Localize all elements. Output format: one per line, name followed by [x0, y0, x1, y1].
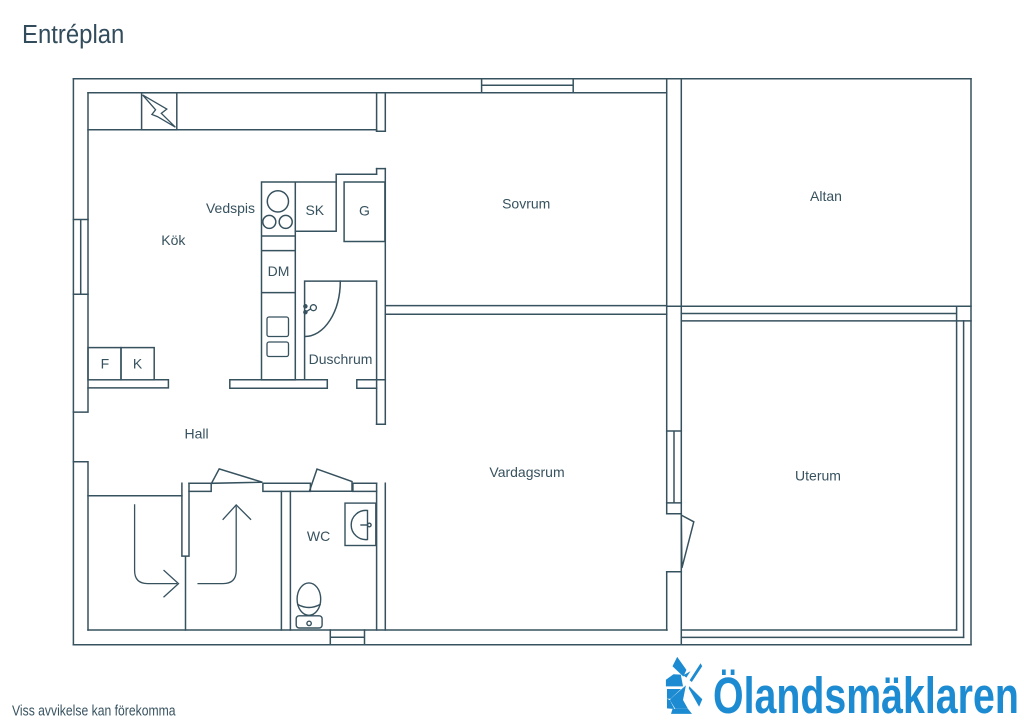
svg-text:Kök: Kök: [161, 232, 186, 248]
svg-text:Ölandsmäklaren: Ölandsmäklaren: [713, 667, 1019, 724]
svg-text:G: G: [359, 203, 370, 219]
svg-text:K: K: [133, 356, 143, 372]
svg-text:WC: WC: [307, 528, 330, 544]
svg-text:Vedspis: Vedspis: [206, 200, 255, 216]
svg-text:Altan: Altan: [810, 188, 842, 204]
svg-text:Vardagsrum: Vardagsrum: [489, 464, 564, 480]
svg-text:SK: SK: [305, 202, 324, 218]
svg-text:Uterum: Uterum: [795, 468, 841, 484]
svg-text:Entréplan: Entréplan: [22, 20, 124, 49]
svg-text:F: F: [101, 356, 110, 372]
svg-text:Viss avvikelse kan förekomma: Viss avvikelse kan förekomma: [12, 702, 176, 718]
svg-text:DM: DM: [268, 263, 290, 279]
svg-text:Hall: Hall: [185, 426, 209, 442]
svg-text:Duschrum: Duschrum: [309, 351, 373, 367]
svg-text:Sovrum: Sovrum: [502, 196, 550, 212]
